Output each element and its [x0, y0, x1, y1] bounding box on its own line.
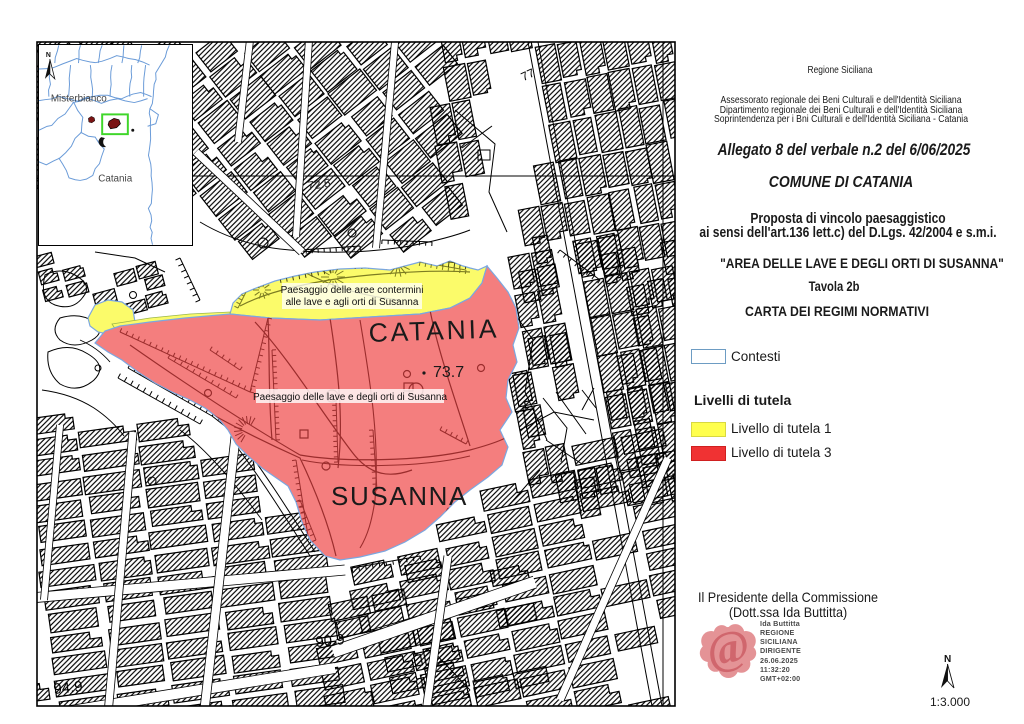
svg-text:Catania: Catania [98, 174, 132, 185]
svg-text:Paesaggio delle lave e degli o: Paesaggio delle lave e degli orti di Sus… [253, 392, 447, 403]
svg-text:alle lave e agli orti di Susan: alle lave e agli orti di Susanna [286, 297, 419, 308]
svg-text:@: @ [703, 619, 754, 677]
svg-text:94.9: 94.9 [53, 678, 84, 698]
svg-text:90.9: 90.9 [315, 631, 346, 651]
svg-text:Paesaggio delle aree contermin: Paesaggio delle aree contermini [281, 285, 424, 296]
svg-text:73.7: 73.7 [433, 364, 464, 381]
svg-text:CATANIA: CATANIA [368, 313, 499, 348]
svg-text:SUSANNA: SUSANNA [331, 481, 468, 511]
svg-text:N: N [46, 52, 51, 59]
svg-text:N: N [944, 654, 951, 665]
svg-text:77: 77 [519, 66, 537, 84]
svg-text:Misterbianco: Misterbianco [51, 94, 107, 105]
